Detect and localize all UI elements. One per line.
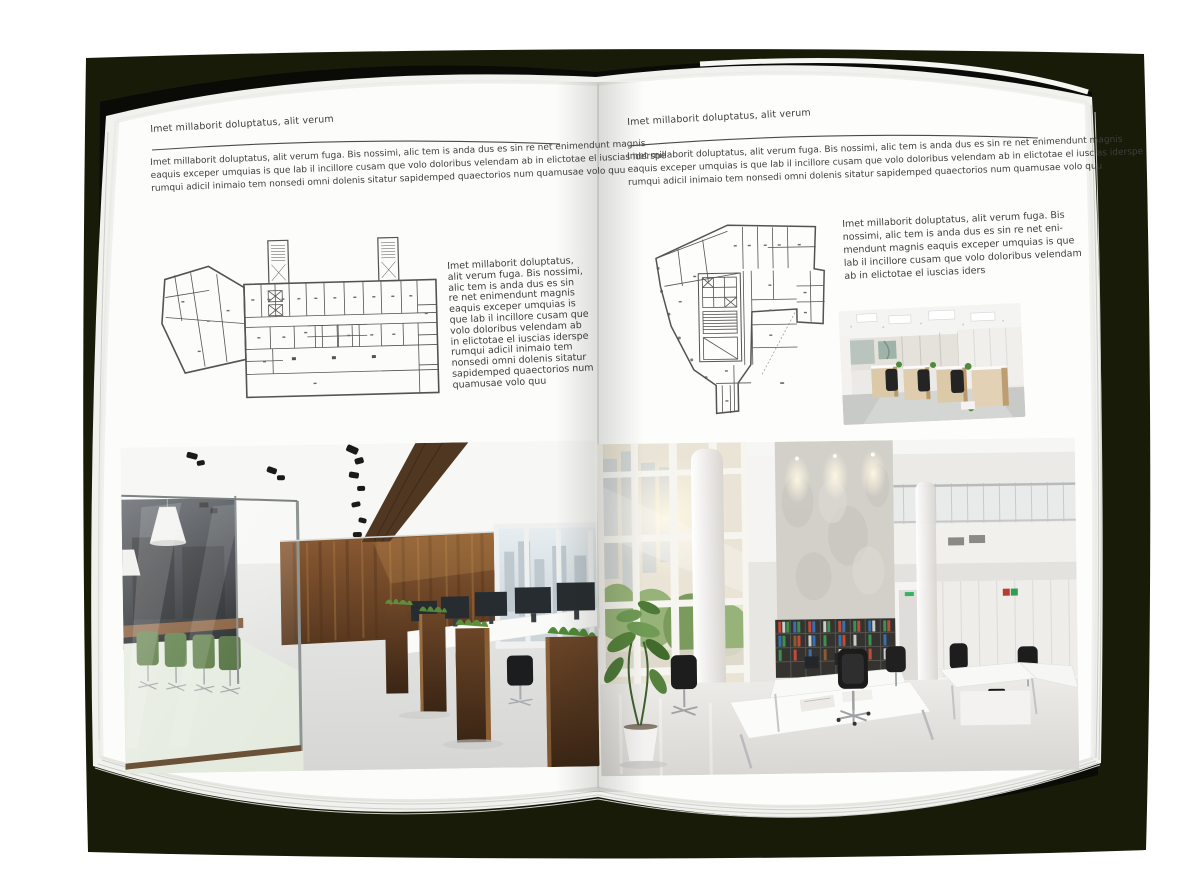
left-page-caption: Imet millaborit doluptatus, alit verum f…: [447, 256, 594, 392]
office-photo-wood-loft: [120, 440, 599, 773]
right-page-caption: Imet millaborit doluptatus, alit verum f…: [842, 208, 1083, 283]
safety-sign-red: [1003, 589, 1010, 596]
office-photo-workstations-small: [839, 303, 1026, 425]
floor-plan-right: [647, 213, 833, 422]
office-photo-atrium: [597, 438, 1080, 777]
exit-sign: [905, 592, 914, 596]
floor-plan-left: [150, 224, 453, 424]
plan-room-marks: [181, 295, 429, 388]
safety-sign-green: [1011, 588, 1018, 595]
binder-bookshelf: [775, 618, 896, 678]
magazine-spread-mockup: Imet millaborit doluptatus, alit verum I…: [0, 0, 1200, 891]
downlight-glows: [784, 449, 887, 503]
